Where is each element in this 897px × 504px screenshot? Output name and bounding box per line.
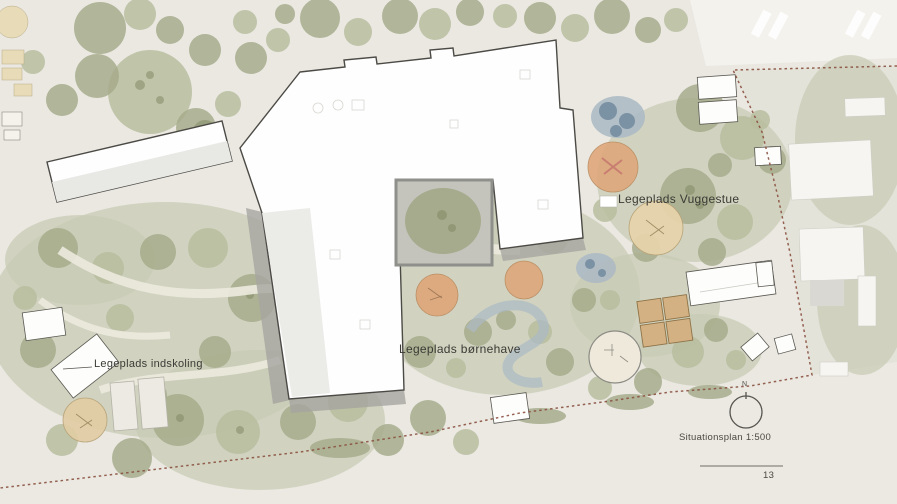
label-scale-caption: Situationsplan 1:500: [679, 432, 771, 443]
label-chip-vuggestue: [600, 196, 617, 207]
sand-circle-indskoling: [63, 398, 107, 442]
water-feature-trampolines: [591, 96, 645, 138]
sand-circle-vuggestue: [629, 201, 683, 255]
label-playground-indskoling: Legeplads indskoling: [94, 358, 203, 370]
play-circle-vuggestue-climb: [588, 142, 638, 192]
play-circle-2: [505, 261, 543, 299]
courtyard: [396, 180, 492, 265]
site-plan-page: Legeplads Vuggestue Legeplads børnehave …: [0, 0, 897, 504]
courtyard-tree: [405, 188, 481, 254]
label-playground-vuggestue: Legeplads Vuggestue: [618, 192, 739, 206]
label-page-number: 13: [763, 470, 774, 481]
sand-circle-bornehave: [589, 331, 641, 383]
play-circle-1: [416, 274, 458, 316]
label-playground-bornehave: Legeplads børnehave: [399, 342, 521, 356]
site-plan-drawing: [0, 0, 897, 504]
label-north: N: [742, 381, 747, 388]
water-feature-small: [576, 253, 616, 283]
